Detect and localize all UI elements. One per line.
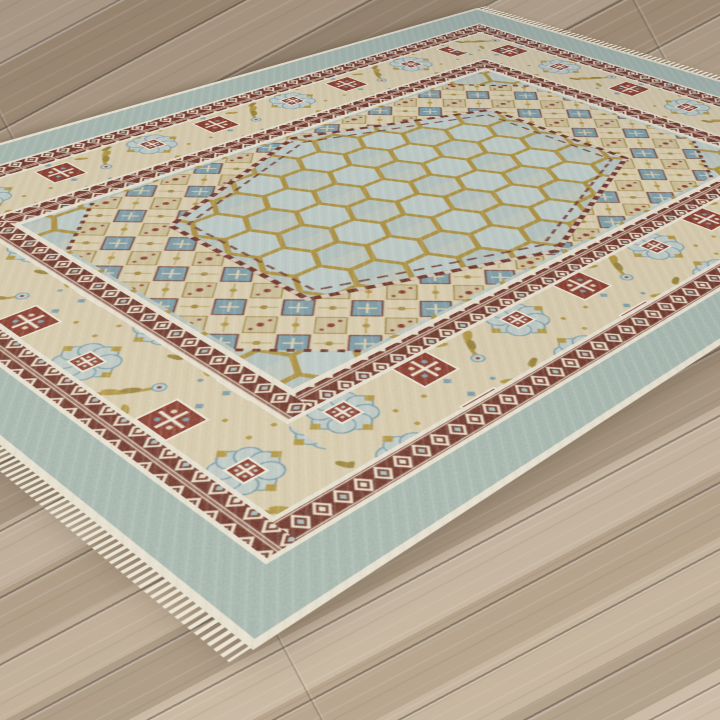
photo-scene — [0, 0, 720, 720]
